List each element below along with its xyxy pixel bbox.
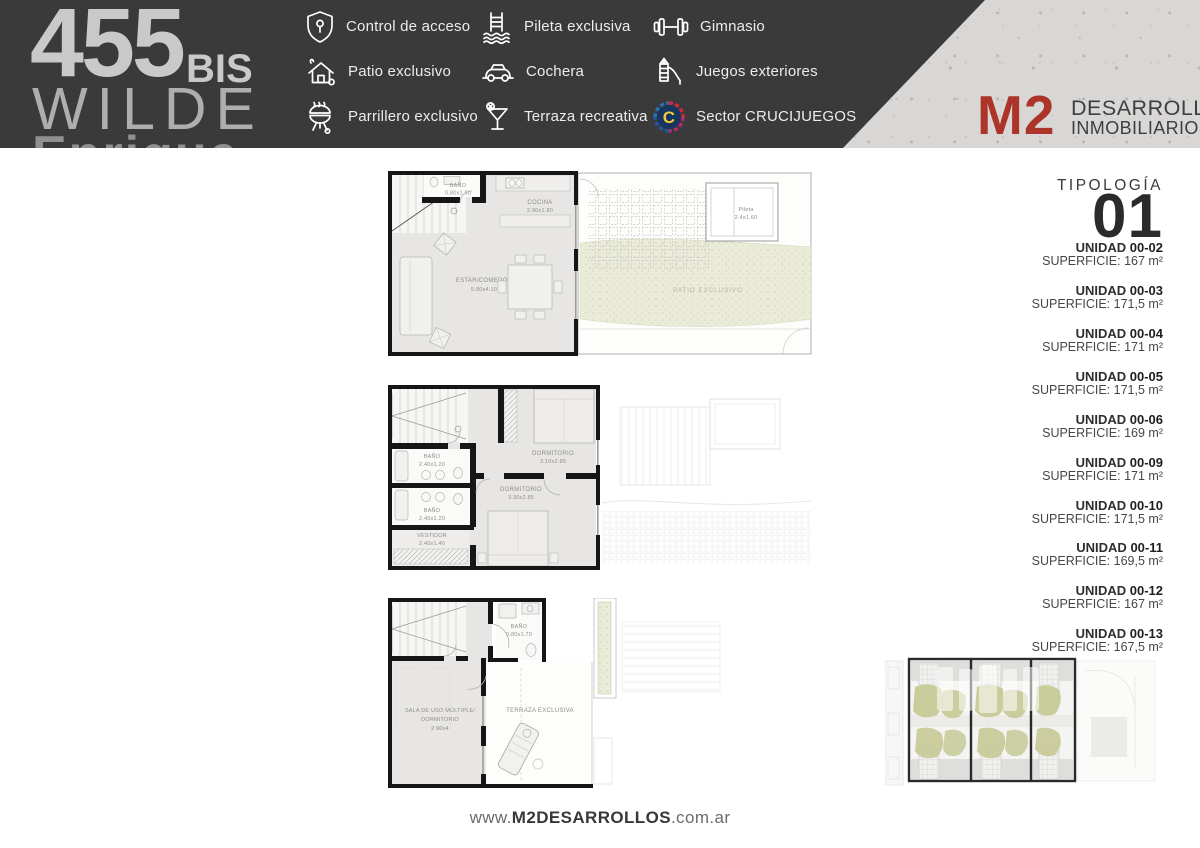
playground-slide-icon [651, 54, 687, 90]
crucijuegos-logo-icon: C [651, 99, 687, 135]
amenity-cochera: Cochera [479, 49, 651, 94]
unidad-label: UNIDAD [1076, 283, 1127, 298]
amenity-juegos: Juegos exteriores [651, 49, 881, 94]
amenity-crucijuegos: C Sector CRUCIJUEGOS [651, 94, 881, 139]
amenity-control-acceso: Control de acceso [303, 4, 479, 49]
unit-code: 00-11 [1130, 540, 1163, 555]
url-domain: M2DESARROLLOS [512, 808, 671, 827]
terrace-label: TERRAZA EXCLUSIVA [506, 708, 574, 714]
bathroom-1: BAÑO 2.40x1.20 [392, 449, 470, 483]
unit-item: UNIDAD 00-10 SUPERFICIE: 171,5 m² [1032, 499, 1163, 527]
bedroom2-label: DORMITORIO [500, 487, 542, 493]
ghost-outline [602, 399, 811, 563]
floor-plan-ground: PATIO EXCLUSIVO Pileta 2.4x1.60 [388, 171, 813, 356]
amenity-label: Sector CRUCIJUEGOS [696, 108, 856, 125]
superficie-label: SUPERFICIE: [1032, 554, 1111, 568]
superficie-label: SUPERFICIE: [1032, 297, 1111, 311]
unidad-label: UNIDAD [1076, 326, 1127, 341]
unit-area: 167 m² [1124, 597, 1163, 611]
watermark-ghost [937, 665, 1039, 713]
url-www: www. [470, 808, 512, 827]
closet [504, 390, 517, 442]
bbq-grill-icon [303, 98, 339, 136]
amenity-label: Parrillero exclusivo [348, 108, 478, 125]
bathroom: BAÑO 0.80x1.90 [424, 175, 480, 197]
amenity-gimnasio: Gimnasio [651, 4, 881, 49]
floor-plan-upper: DORMITORIO 3.10x2.85 BAÑO 2.40x1.20 BAÑO… [388, 385, 813, 570]
amenity-label: Control de acceso [346, 18, 470, 35]
ghost-rect [594, 738, 612, 784]
website-link[interactable]: www.M2DESARROLLOS.com.ar [470, 808, 731, 827]
pool-label: Pileta [739, 207, 755, 213]
dumbbell-icon [651, 9, 691, 45]
unit-item: UNIDAD 00-04 SUPERFICIE: 171 m² [1032, 327, 1163, 355]
amenity-label: Gimnasio [700, 18, 765, 35]
unit-area: 169,5 m² [1114, 554, 1163, 568]
superficie-label: SUPERFICIE: [1042, 426, 1121, 440]
bathroom-label: BAÑO [450, 182, 467, 189]
amenity-patio: Patio exclusivo [303, 49, 479, 94]
pool-dims: 2.4x1.60 [735, 215, 758, 221]
amenities-list: Control de acceso Pileta exclusiva [303, 4, 881, 139]
living-dims: 5.80x4.10 [471, 287, 497, 293]
bathroom-2: BAÑO 2.40x1.20 [392, 488, 470, 525]
kitchen-dims: 2.90x1.80 [527, 208, 553, 214]
unit-area: 167 m² [1124, 254, 1163, 268]
bathroom1-label: BAÑO [424, 453, 441, 460]
unit-item: UNIDAD 00-11 SUPERFICIE: 169,5 m² [1032, 541, 1163, 569]
unit-area: 167,5 m² [1114, 640, 1163, 654]
patio-label: PATIO EXCLUSIVO [673, 287, 743, 294]
unit-item: UNIDAD 00-03 SUPERFICIE: 171,5 m² [1032, 284, 1163, 312]
amenity-label: Pileta exclusiva [524, 18, 631, 35]
bathroom-label: BAÑO [511, 623, 528, 630]
unit-area: 171 m² [1124, 340, 1163, 354]
unit-code: 00-10 [1130, 498, 1163, 513]
unit-code: 00-12 [1130, 583, 1163, 598]
vestidor-dims: 2.40x1.40 [419, 541, 445, 547]
planter-strip [594, 598, 616, 698]
stairs [392, 602, 466, 656]
unidad-label: UNIDAD [1076, 412, 1127, 427]
brochure-page: 455 BIS WILDE Enrique Control de acceso [0, 0, 1200, 848]
sala-label-1: SALA DE USO MÚLTIPLE/ [405, 707, 475, 714]
site-plan [885, 657, 1167, 789]
vestidor-label: VESTIDOR [417, 533, 447, 539]
unit-code: 00-02 [1130, 240, 1163, 255]
unit-area: 171,5 m² [1114, 512, 1163, 526]
patio-house-icon [303, 54, 339, 90]
unit-code: 00-04 [1130, 326, 1163, 341]
dressing-room: VESTIDOR 2.40x1.40 [392, 530, 470, 566]
unidad-label: UNIDAD [1076, 540, 1127, 555]
sala-dims: 2.90x4 [431, 726, 449, 732]
pool-ladder-icon [479, 9, 515, 45]
amenity-parrillero: Parrillero exclusivo [303, 94, 479, 139]
bedroom2-dims: 3.30x2.85 [508, 495, 534, 501]
unit-code: 00-03 [1130, 283, 1163, 298]
bathroom2-label: BAÑO [424, 507, 441, 514]
superficie-label: SUPERFICIE: [1042, 254, 1121, 268]
unit-code: 00-13 [1130, 626, 1163, 641]
m2-brand-line2: INMOBILIARIOS. [1071, 118, 1200, 139]
bathroom-dims: 0.80x1.90 [445, 191, 471, 197]
svg-text:C: C [663, 108, 675, 127]
unidad-label: UNIDAD [1076, 583, 1127, 598]
logo-line3-cutoff: Enrique [32, 128, 292, 148]
bathroom-dims: 0.80x1.70 [506, 632, 532, 638]
bedroom1-label: DORMITORIO [532, 451, 574, 457]
superficie-label: SUPERFICIE: [1042, 597, 1121, 611]
terrace: TERRAZA EXCLUSIVA [486, 662, 592, 784]
unidad-label: UNIDAD [1076, 240, 1127, 255]
unidad-label: UNIDAD [1076, 626, 1127, 641]
shield-access-icon [303, 9, 337, 45]
superficie-label: SUPERFICIE: [1042, 469, 1121, 483]
cocktail-icon [479, 98, 515, 136]
superficie-label: SUPERFICIE: [1032, 512, 1111, 526]
unit-item: UNIDAD 00-06 SUPERFICIE: 169 m² [1032, 413, 1163, 441]
unidad-label: UNIDAD [1076, 498, 1127, 513]
kitchen-label: COCINA [527, 200, 552, 206]
unit-item: UNIDAD 00-12 SUPERFICIE: 167 m² [1032, 584, 1163, 612]
siteplan-annex [1077, 661, 1155, 781]
superficie-label: SUPERFICIE: [1032, 640, 1111, 654]
superficie-label: SUPERFICIE: [1042, 340, 1121, 354]
tipologia-number: 01 [1092, 186, 1163, 248]
bedroom1-dims: 3.10x2.85 [540, 459, 566, 465]
amenity-terraza: Terraza recreativa [479, 94, 651, 139]
unit-item: UNIDAD 00-09 SUPERFICIE: 171 m² [1032, 456, 1163, 484]
unit-code: 00-06 [1130, 412, 1163, 427]
unit-item: UNIDAD 00-13 SUPERFICIE: 167,5 m² [1032, 627, 1163, 655]
siteplan-main-block [909, 659, 1075, 781]
patio-area: PATIO EXCLUSIVO Pileta 2.4x1.60 [578, 173, 811, 354]
unit-area: 171,5 m² [1114, 383, 1163, 397]
m2-logo: M2 [977, 88, 1055, 143]
amenity-label: Cochera [526, 63, 584, 80]
unit-item: UNIDAD 00-05 SUPERFICIE: 171,5 m² [1032, 370, 1163, 398]
unit-area: 171 m² [1124, 469, 1163, 483]
amenity-label: Juegos exteriores [696, 63, 818, 80]
sala-label-2: DORMITORIO [421, 717, 459, 723]
unit-area: 171,5 m² [1114, 297, 1163, 311]
pool: Pileta 2.4x1.60 [706, 183, 778, 241]
unidad-label: UNIDAD [1076, 455, 1127, 470]
amenity-label: Patio exclusivo [348, 63, 451, 80]
superficie-label: SUPERFICIE: [1032, 383, 1111, 397]
ghost-grid [622, 622, 720, 692]
floor-plan-roof: BAÑO 0.80x1.70 SALA DE USO MÚLTIPLE/ DOR… [388, 598, 813, 788]
url-tld: .com.ar [671, 808, 730, 827]
unit-list: UNIDAD 00-02 SUPERFICIE: 167 m² UNIDAD 0… [1032, 241, 1163, 670]
header-bar: 455 BIS WILDE Enrique Control de acceso [0, 0, 1200, 148]
unidad-label: UNIDAD [1076, 369, 1127, 384]
car-icon [479, 54, 517, 90]
unit-area: 169 m² [1124, 426, 1163, 440]
footer: www.M2DESARROLLOS.com.ar [0, 808, 1200, 828]
bathroom1-dims: 2.40x1.20 [419, 462, 445, 468]
unit-item: UNIDAD 00-02 SUPERFICIE: 167 m² [1032, 241, 1163, 269]
amenity-label: Terraza recreativa [524, 108, 648, 125]
bathroom2-dims: 2.40x1.20 [419, 516, 445, 522]
unit-code: 00-05 [1130, 369, 1163, 384]
unit-code: 00-09 [1130, 455, 1163, 470]
bathroom: BAÑO 0.80x1.70 [496, 602, 542, 660]
amenity-pileta: Pileta exclusiva [479, 4, 651, 49]
stairs [392, 389, 468, 443]
